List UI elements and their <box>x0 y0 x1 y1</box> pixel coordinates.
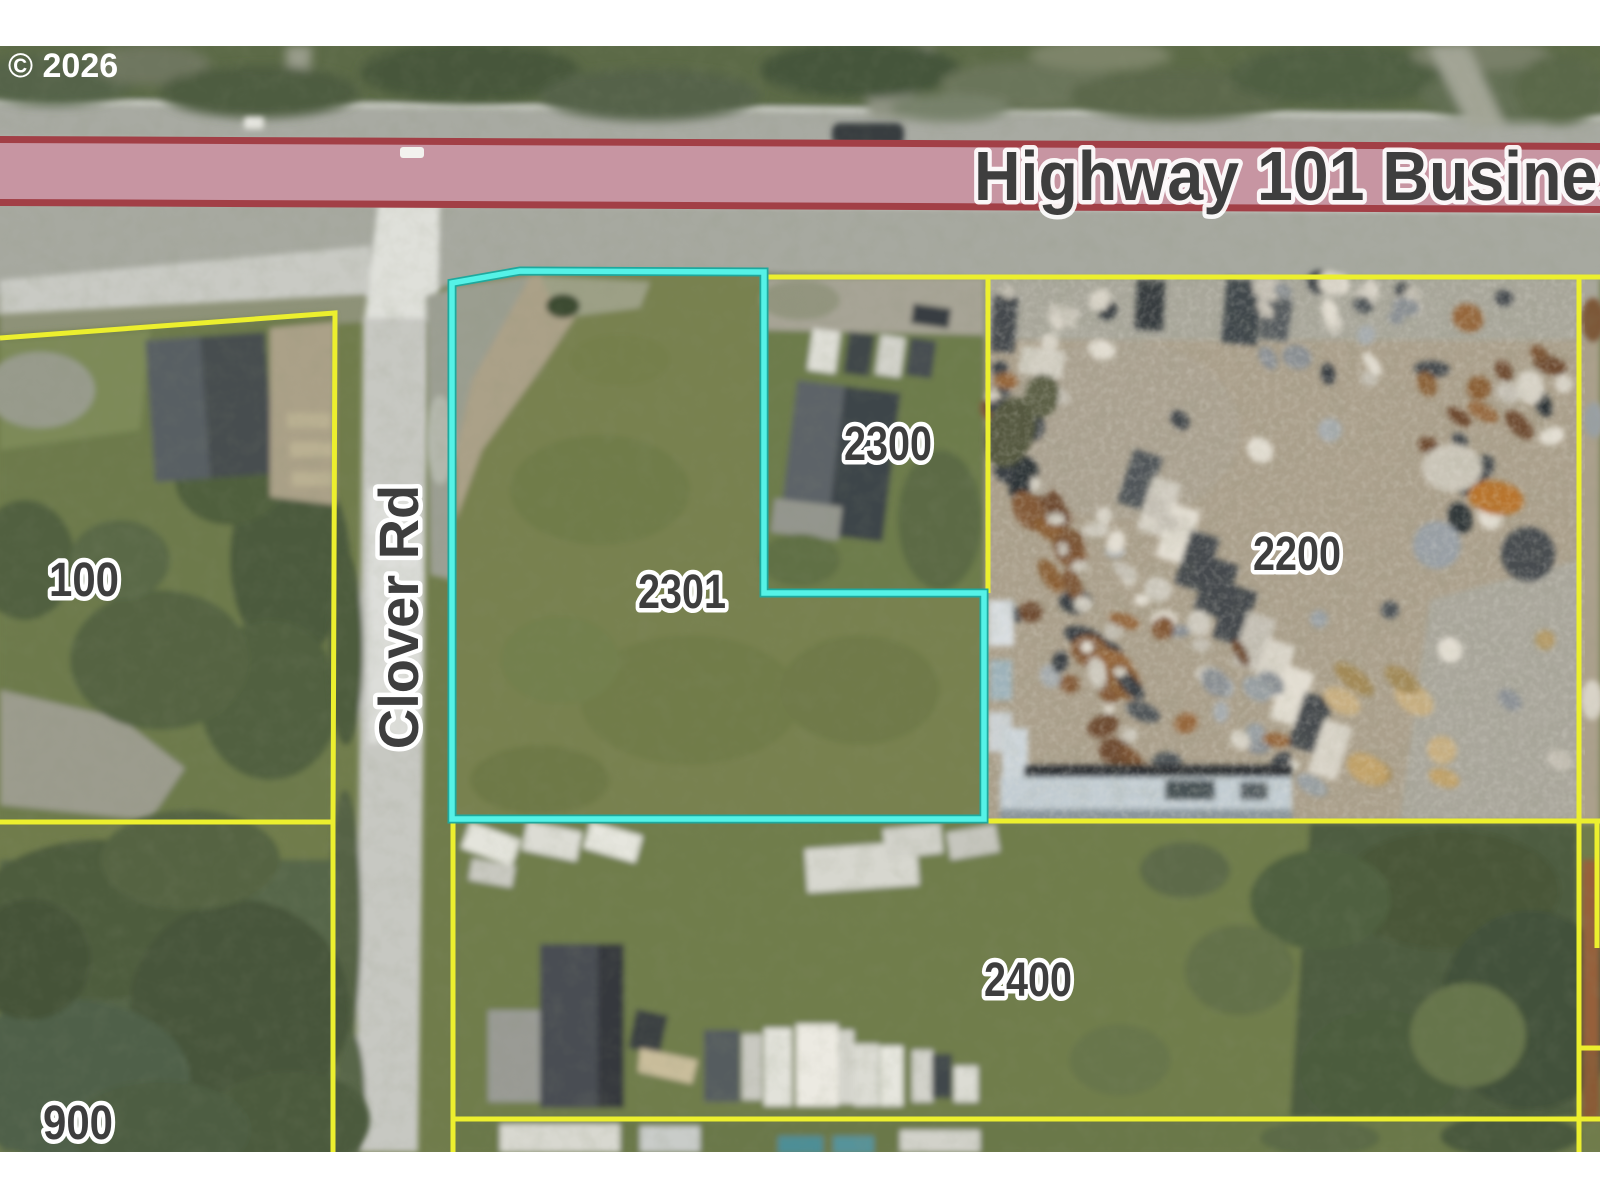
svg-text:2400: 2400 <box>984 954 1072 1007</box>
svg-text:Clover Rd: Clover Rd <box>367 485 430 750</box>
svg-text:100: 100 <box>49 554 119 607</box>
svg-text:2301: 2301 <box>638 566 726 619</box>
svg-text:© 2026: © 2026 <box>8 47 118 85</box>
svg-text:900: 900 <box>43 1097 113 1150</box>
svg-text:2300: 2300 <box>844 418 932 471</box>
svg-text:2200: 2200 <box>1253 528 1341 581</box>
svg-text:Highway 101 Business: Highway 101 Business <box>974 137 1600 215</box>
